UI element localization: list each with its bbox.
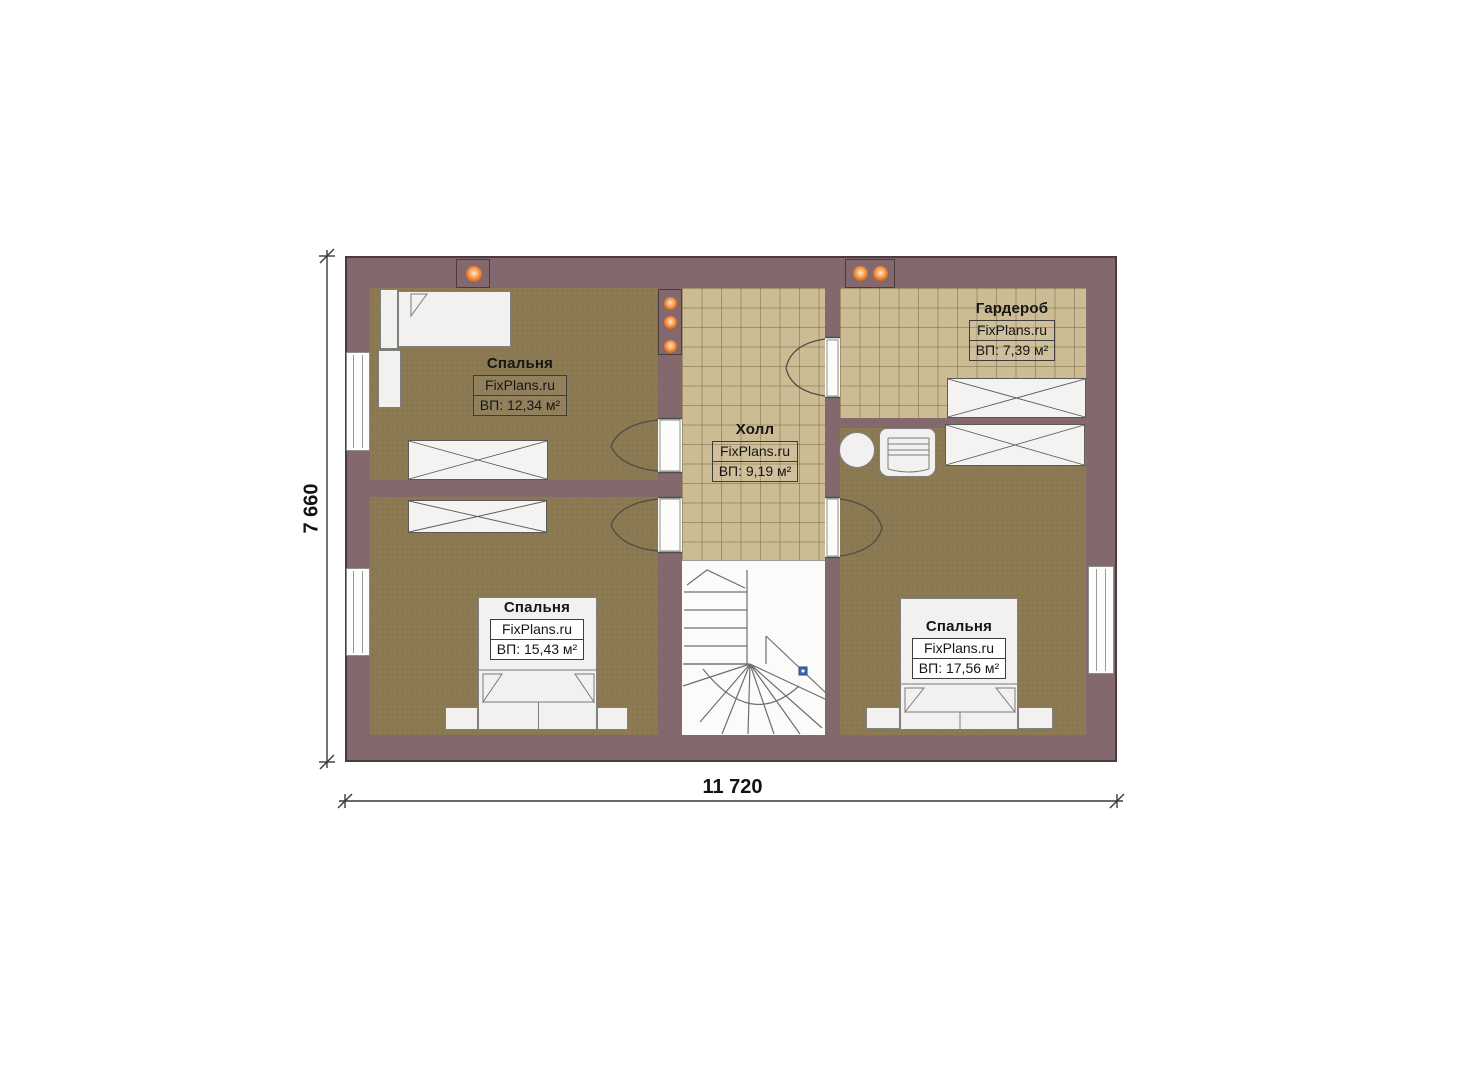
area-label: ВП: 17,56 м² [912,659,1006,679]
room-label-bedroom-top-left: Спальня FixPlans.ru ВП: 12,34 м² [470,355,570,416]
bed-icon [398,291,511,347]
ceiling-light-icon [853,266,868,281]
room-label-wardrobe: Гардероб FixPlans.ru ВП: 7,39 м² [960,300,1064,361]
brand-label: FixPlans.ru [473,375,567,396]
ceiling-light-icon [664,297,677,310]
brand-label: FixPlans.ru [969,320,1056,341]
pillow-fold-icon [399,292,512,348]
armchair-icon [879,428,936,477]
room-label-hall: Холл FixPlans.ru ВП: 9,19 м² [705,421,805,482]
window-icon [346,352,370,451]
round-table-icon [839,432,875,468]
ceiling-light-icon [664,340,677,353]
room-info-card: FixPlans.ru ВП: 17,56 м² [912,638,1006,679]
room-title: Спальня [470,355,570,372]
room-title: Гардероб [960,300,1064,317]
wardrobe-cabinet-icon [408,500,547,533]
armchair-detail-icon [880,429,937,478]
brand-label: FixPlans.ru [912,638,1006,659]
ceiling-light-box [658,289,682,355]
brand-label: FixPlans.ru [712,441,799,462]
area-label: ВП: 7,39 м² [969,341,1056,361]
ceiling-light-box [845,259,895,288]
nightstand-icon [866,707,900,729]
door-opening [658,498,682,552]
nightstand-icon [378,350,401,408]
ceiling-light-icon [873,266,888,281]
room-info-card: FixPlans.ru ВП: 15,43 м² [490,619,584,660]
room-title: Холл [705,421,805,438]
dimension-width-label: 11 720 [660,776,805,799]
door-opening [825,338,840,397]
door-opening [825,498,840,557]
door-opening [658,419,682,472]
nightstand-icon [597,707,628,730]
window-icon [346,568,370,656]
brand-label: FixPlans.ru [490,619,584,640]
room-info-card: FixPlans.ru ВП: 9,19 м² [712,441,799,482]
area-label: ВП: 12,34 м² [473,396,567,416]
floor-plan-canvas: Спальня FixPlans.ru ВП: 12,34 м² Холл Fi… [0,0,1474,1080]
ceiling-light-icon [466,266,482,282]
room-title: Спальня [899,618,1019,635]
bed-headboard-icon [380,289,398,349]
ceiling-light-box [456,259,490,288]
room-info-card: FixPlans.ru ВП: 7,39 м² [969,320,1056,361]
room-label-bedroom-bottom-right: Спальня FixPlans.ru ВП: 17,56 м² [899,618,1019,679]
wardrobe-cabinet-icon [947,378,1086,418]
room-title: Спальня [477,599,597,616]
nightstand-icon [445,707,478,730]
stairwell-floor [682,560,825,735]
room-label-bedroom-bottom-left: Спальня FixPlans.ru ВП: 15,43 м² [477,599,597,660]
ceiling-light-icon [664,316,677,329]
area-label: ВП: 15,43 м² [490,640,584,660]
area-label: ВП: 9,19 м² [712,462,799,482]
wardrobe-cabinet-icon [408,440,548,480]
dimension-height-label: 7 660 [301,469,324,549]
window-icon [1088,566,1114,674]
nightstand-icon [1018,707,1053,729]
wardrobe-cabinet-icon [945,424,1085,466]
room-info-card: FixPlans.ru ВП: 12,34 м² [473,375,567,416]
